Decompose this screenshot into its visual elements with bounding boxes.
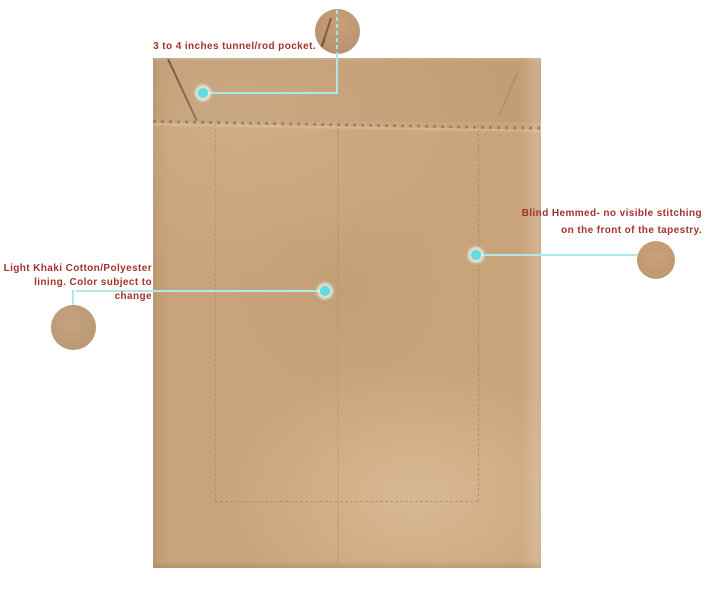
callout-dot-lining[interactable]: [320, 286, 330, 296]
rod-pocket-label: 3 to 4 inches tunnel/rod pocket.: [120, 40, 316, 54]
lining-label-line1: Light Khaki Cotton/Polyester: [0, 262, 152, 276]
callout-line-rod-pocket-dashed: [336, 10, 338, 53]
fabric-center-crease: [337, 128, 339, 563]
detail-inset-blind-hem: [637, 241, 675, 279]
detail-inset-lining: [51, 305, 96, 350]
rod-pocket-label-text: 3 to 4 inches tunnel/rod pocket.: [120, 40, 316, 54]
callout-line-blind-hem-horizontal: [481, 254, 638, 256]
callout-line-rod-pocket-horizontal: [206, 92, 338, 94]
blind-hem-label-line1: Blind Hemmed- no visible stitching: [480, 205, 702, 222]
blind-hem-label-line2: on the front of the tapestry.: [480, 222, 702, 239]
lining-label: Light Khaki Cotton/Polyester lining. Col…: [0, 262, 152, 304]
fabric-crease-top-right: [498, 74, 518, 117]
annotated-product-image: 3 to 4 inches tunnel/rod pocket. Light K…: [0, 0, 706, 600]
callout-line-rod-pocket-vertical: [336, 53, 338, 93]
hem-stitch-line-left: [215, 124, 216, 501]
rod-pocket-seam: [153, 120, 541, 130]
tapestry-lining-photo: [153, 58, 541, 568]
magnified-seam-line-2: [319, 39, 326, 51]
lining-label-line2: lining. Color subject to change: [0, 276, 152, 304]
blind-hem-label: Blind Hemmed- no visible stitching on th…: [480, 205, 702, 239]
callout-dot-blind-hem[interactable]: [471, 250, 481, 260]
corner-fold-crease: [167, 59, 198, 121]
hem-stitch-line-bottom: [215, 501, 478, 502]
hem-stitch-line-right: [478, 124, 479, 501]
callout-dot-rod-pocket[interactable]: [198, 88, 208, 98]
